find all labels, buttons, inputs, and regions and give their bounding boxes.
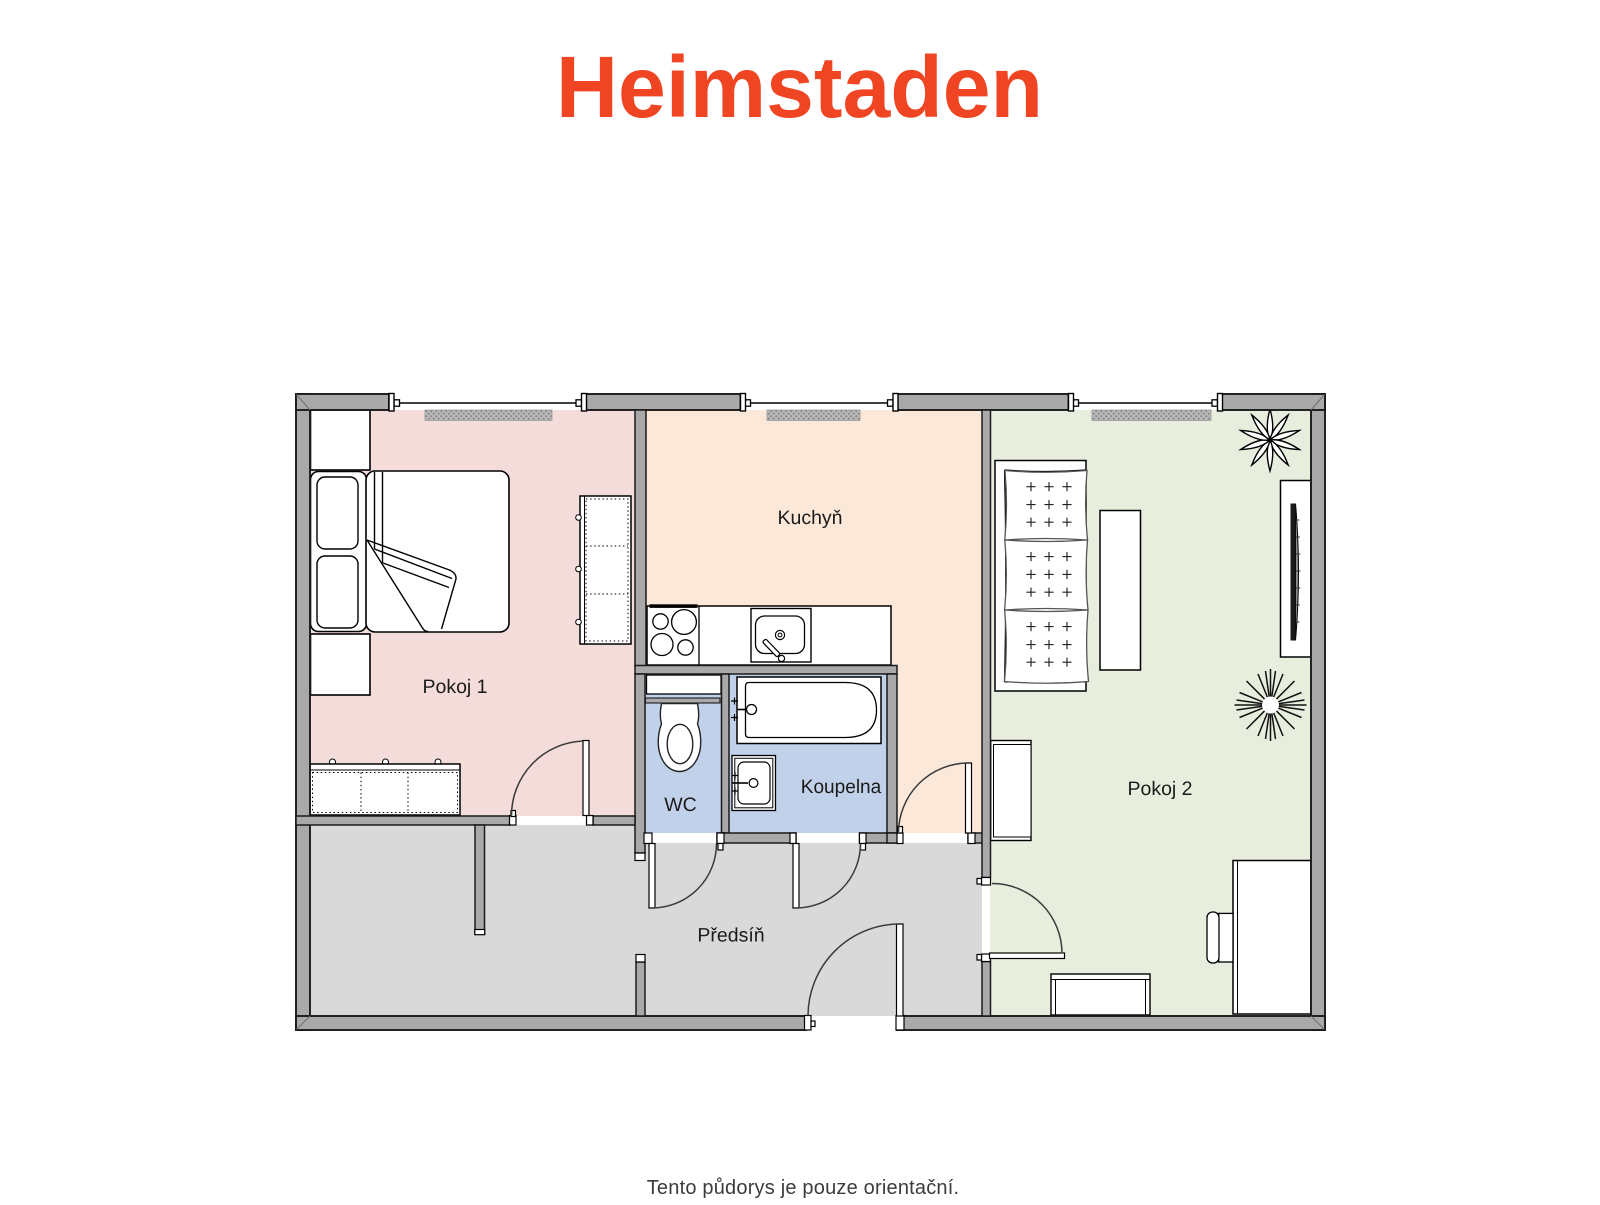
svg-text:Kuchyň: Kuchyň bbox=[777, 507, 842, 529]
svg-text:Pokoj 1: Pokoj 1 bbox=[422, 676, 487, 698]
svg-text:Pokoj 2: Pokoj 2 bbox=[1127, 778, 1192, 800]
svg-text:Koupelna: Koupelna bbox=[801, 776, 882, 798]
svg-text:WC: WC bbox=[664, 794, 697, 816]
svg-text:Předsíň: Předsíň bbox=[697, 925, 764, 947]
